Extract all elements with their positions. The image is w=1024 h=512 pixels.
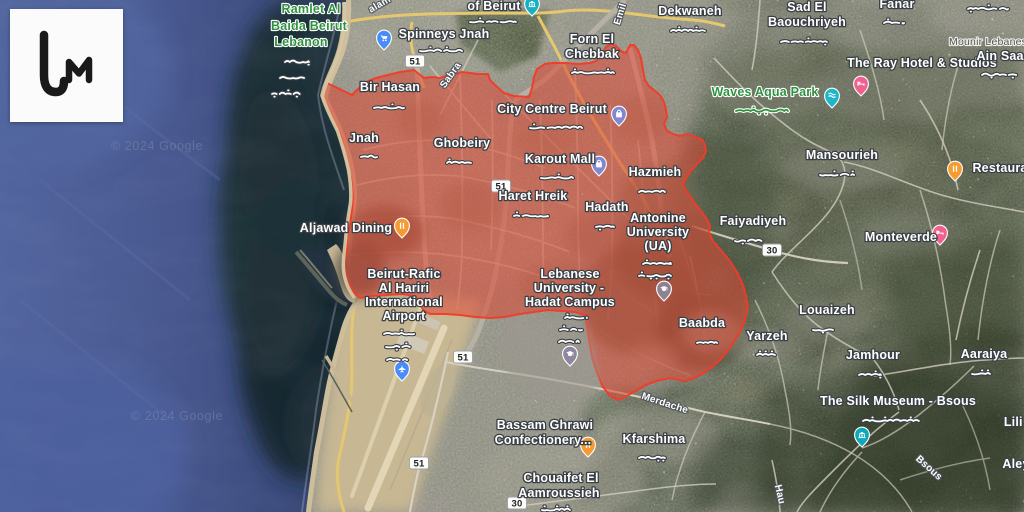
svg-text:© 2024 Google: © 2024 Google — [131, 409, 223, 423]
svg-text:Lili L: Lili L — [1004, 415, 1024, 429]
svg-text:Lebanese: Lebanese — [540, 267, 599, 281]
svg-text:Bassam Ghrawi: Bassam Ghrawi — [497, 418, 593, 432]
svg-text:Aley: Aley — [1002, 457, 1024, 471]
svg-text:Ghobeiry: Ghobeiry — [434, 136, 490, 150]
svg-text:Ain Saad: Ain Saad — [976, 49, 1024, 63]
svg-text:Mounir Lebanes: Mounir Lebanes — [949, 36, 1024, 48]
svg-text:The Ray Hotel & Studios: The Ray Hotel & Studios — [847, 56, 997, 70]
svg-text:Monteverde: Monteverde — [865, 230, 937, 244]
svg-text:Yarzeh: Yarzeh — [746, 329, 788, 343]
svg-text:(UA): (UA) — [644, 239, 671, 253]
svg-text:51: 51 — [410, 57, 421, 68]
svg-text:Kfarshima: Kfarshima — [623, 432, 687, 446]
svg-text:Ramlet Al: Ramlet Al — [282, 2, 341, 16]
svg-text:Spinneys Jnah: Spinneys Jnah — [399, 27, 490, 41]
svg-text:Aljawad Dining: Aljawad Dining — [300, 221, 392, 235]
svg-text:Jnah: Jnah — [349, 131, 379, 145]
svg-text:Hazmieh: Hazmieh — [629, 165, 682, 179]
svg-text:City Centre Beirut: City Centre Beirut — [497, 102, 608, 116]
svg-text:Baabda: Baabda — [679, 316, 726, 330]
svg-text:International: International — [365, 295, 443, 309]
svg-text:Chebbak: Chebbak — [565, 47, 619, 61]
svg-text:Haret Hreik: Haret Hreik — [499, 189, 568, 203]
svg-text:Dekwaneh: Dekwaneh — [658, 4, 721, 18]
svg-text:Hadat Campus: Hadat Campus — [525, 295, 615, 309]
svg-text:Al Hariri: Al Hariri — [379, 281, 429, 295]
svg-text:Forn El: Forn El — [570, 32, 614, 46]
svg-text:30: 30 — [767, 246, 778, 257]
svg-text:University -: University - — [534, 281, 604, 295]
svg-text:Lebanon: Lebanon — [274, 35, 327, 49]
svg-text:Beirut-Rafic: Beirut-Rafic — [367, 267, 440, 281]
svg-text:Aamroussieh: Aamroussieh — [518, 486, 599, 500]
svg-text:Airport: Airport — [382, 309, 426, 323]
svg-text:30: 30 — [512, 499, 523, 510]
svg-text:University: University — [627, 225, 689, 239]
svg-text:Baida Beirut: Baida Beirut — [271, 19, 348, 33]
svg-text:of Beirut: of Beirut — [467, 0, 521, 13]
svg-text:Aaraiya: Aaraiya — [961, 347, 1008, 361]
svg-text:51: 51 — [458, 353, 469, 364]
svg-text:Fanar: Fanar — [879, 0, 914, 11]
svg-text:Antonine: Antonine — [630, 211, 686, 225]
svg-text:Bir Hasan: Bir Hasan — [360, 80, 420, 94]
svg-text:Hadath: Hadath — [585, 200, 629, 214]
svg-text:Louaizeh: Louaizeh — [799, 303, 855, 317]
svg-text:Waves Aqua Park: Waves Aqua Park — [712, 85, 819, 99]
svg-text:Sad El: Sad El — [787, 0, 826, 14]
svg-text:The Silk Museum - Bsous: The Silk Museum - Bsous — [820, 394, 976, 408]
svg-text:Chouaifet El: Chouaifet El — [523, 471, 598, 485]
svg-text:Faiyadiyeh: Faiyadiyeh — [720, 214, 787, 228]
svg-text:© 2024 Google: © 2024 Google — [111, 139, 203, 153]
svg-text:Confectionery...: Confectionery... — [495, 433, 592, 447]
svg-text:Baouchriyeh: Baouchriyeh — [768, 15, 846, 29]
svg-text:51: 51 — [414, 459, 425, 470]
svg-text:Restaura: Restaura — [972, 161, 1024, 175]
svg-text:Karout Mall: Karout Mall — [525, 152, 595, 166]
svg-text:Jamhour: Jamhour — [846, 348, 900, 362]
svg-text:Mansourieh: Mansourieh — [806, 148, 878, 162]
